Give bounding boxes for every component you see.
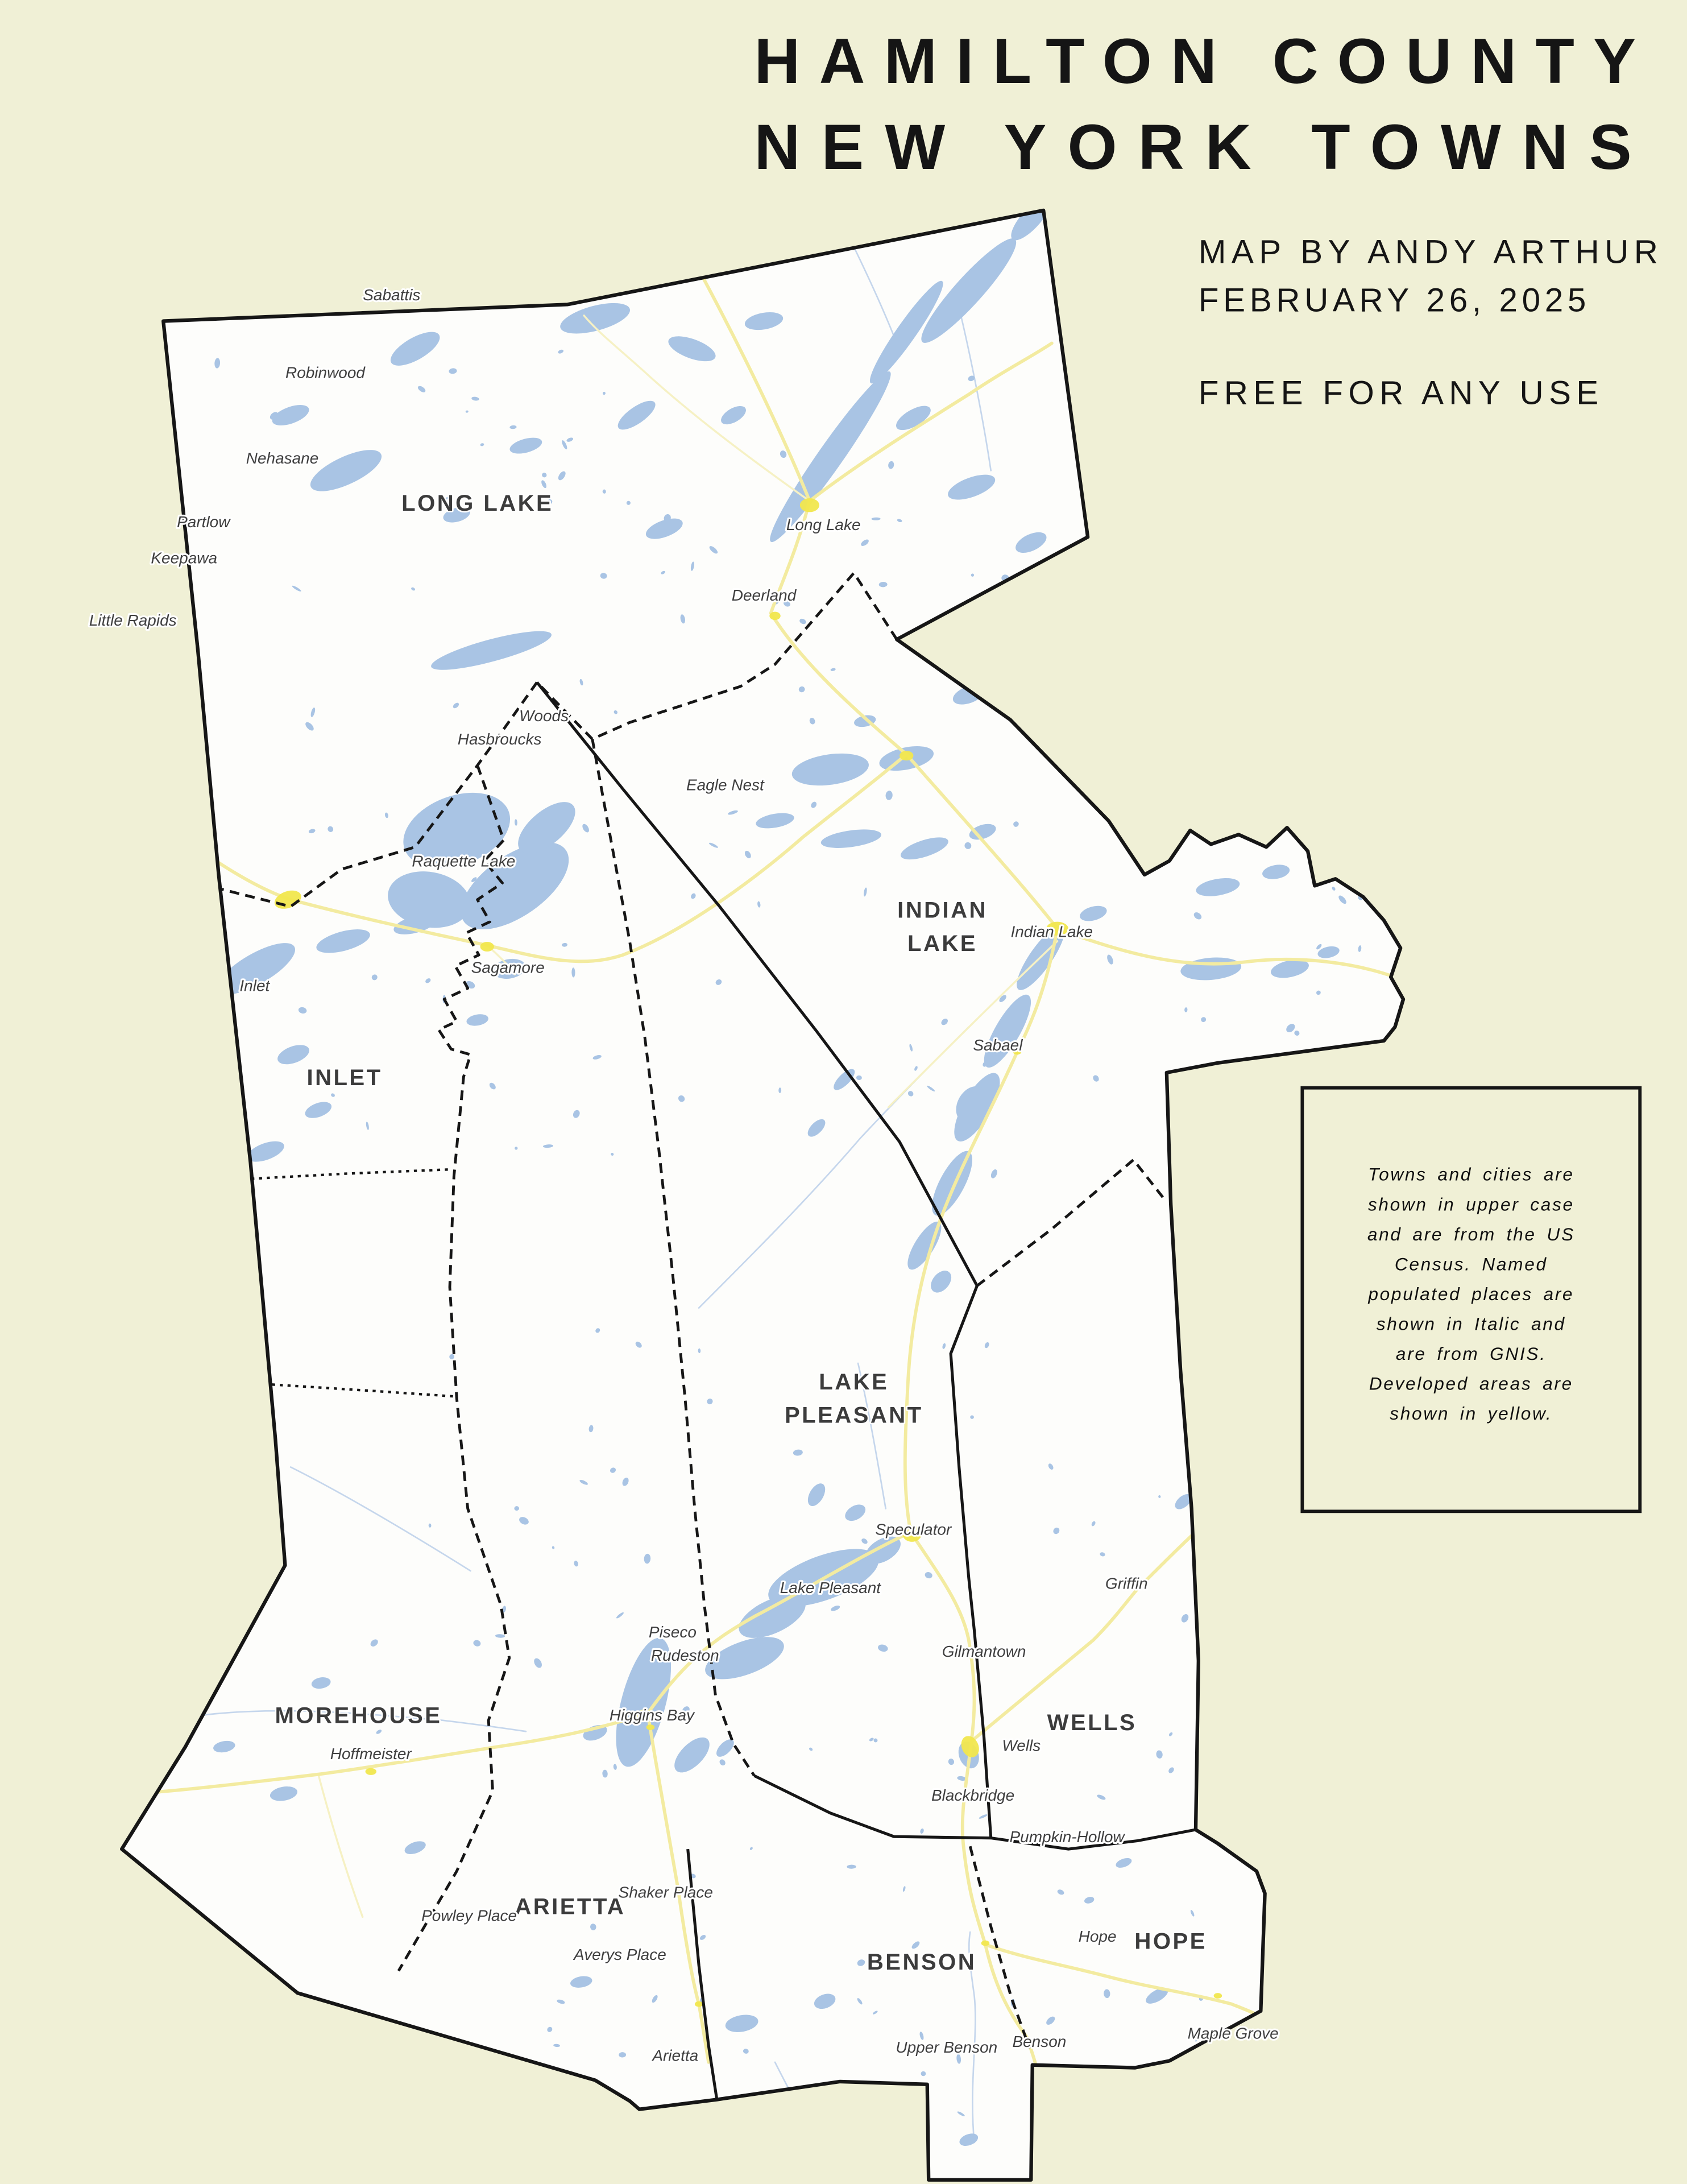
place-label-little-rapids: Little Rapids bbox=[89, 611, 177, 629]
lake-speck bbox=[859, 2110, 865, 2116]
place-label-blackbridge: Blackbridge bbox=[931, 1786, 1014, 1804]
place-label-lake-pleasant: Lake Pleasant bbox=[780, 1579, 882, 1596]
legend-note-line-3: and are from the US bbox=[1367, 1224, 1575, 1244]
place-label-piseco: Piseco bbox=[649, 1623, 697, 1641]
map-title-line2: NEW YORK TOWNS bbox=[755, 111, 1636, 183]
place-label-speculator: Speculator bbox=[876, 1521, 952, 1538]
place-label-partlow: Partlow bbox=[177, 513, 231, 531]
legend-note-text: Towns and cities areshown in upper casea… bbox=[1367, 1164, 1575, 1424]
place-label-keepawa: Keepawa bbox=[151, 549, 217, 566]
town-label-morehouse: MOREHOUSE bbox=[275, 1703, 442, 1728]
place-label-rudeston: Rudeston bbox=[651, 1647, 719, 1664]
place-label-hasbroucks: Hasbroucks bbox=[458, 730, 542, 748]
place-label-robinwood: Robinwood bbox=[285, 363, 366, 381]
legend-note-line-7: are from GNIS. bbox=[1396, 1343, 1547, 1364]
place-label-inlet: Inlet bbox=[239, 977, 270, 994]
place-label-deerland: Deerland bbox=[732, 586, 797, 604]
lake-speck bbox=[1211, 2074, 1219, 2083]
town-label-lake: LAKE bbox=[819, 1369, 889, 1395]
lake-speck bbox=[1105, 697, 1115, 706]
place-label-maple-grove: Maple Grove bbox=[1188, 2024, 1279, 2042]
lake-speck bbox=[1092, 759, 1099, 763]
place-label-indian-lake: Indian Lake bbox=[1010, 923, 1093, 940]
legend-note-line-8: Developed areas are bbox=[1369, 1374, 1573, 1394]
place-label-averys-place: Averys Place bbox=[573, 1946, 666, 1963]
place-label-upper-benson: Upper Benson bbox=[896, 2038, 997, 2056]
town-label-pleasant: PLEASANT bbox=[785, 1403, 923, 1428]
place-label-nehasane: Nehasane bbox=[246, 449, 319, 467]
place-label-long-lake: Long Lake bbox=[786, 516, 861, 533]
county-landmass bbox=[122, 210, 1403, 2180]
town-label-long-lake: LONG LAKE bbox=[401, 490, 553, 516]
place-label-wells: Wells bbox=[1002, 1736, 1041, 1754]
place-label-benson: Benson bbox=[1012, 2033, 1066, 2050]
legend-note-line-2: shown in upper case bbox=[1368, 1194, 1574, 1214]
place-label-shaker-place: Shaker Place bbox=[619, 1883, 713, 1901]
map-title-line1: HAMILTON COUNTY bbox=[755, 26, 1640, 97]
legend-note-line-9: shown in yellow. bbox=[1390, 1403, 1552, 1424]
place-label-eagle-nest: Eagle Nest bbox=[686, 776, 765, 794]
town-label-benson: BENSON bbox=[867, 1949, 976, 1975]
credit-license: FREE FOR ANY USE bbox=[1199, 375, 1601, 412]
town-label-wells: WELLS bbox=[1047, 1710, 1137, 1735]
place-label-raquette-lake: Raquette Lake bbox=[412, 852, 515, 870]
place-label-woods: Woods bbox=[519, 707, 569, 725]
town-label-hope: HOPE bbox=[1134, 1928, 1207, 1954]
place-label-hope: Hope bbox=[1079, 1927, 1117, 1945]
legend-note-line-6: shown in Italic and bbox=[1377, 1314, 1566, 1334]
lake-speck bbox=[1322, 849, 1328, 856]
place-label-arietta: Arietta bbox=[651, 2046, 698, 2064]
place-label-sabael: Sabael bbox=[973, 1036, 1023, 1054]
credit-byline: MAP BY ANDY ARTHUR bbox=[1199, 233, 1661, 270]
place-label-griffin: Griffin bbox=[1105, 1575, 1148, 1592]
place-label-pumpkin-hollow: Pumpkin-Hollow bbox=[1010, 1828, 1126, 1846]
town-label-lake: LAKE bbox=[907, 930, 977, 956]
place-label-higgins-bay: Higgins Bay bbox=[610, 1706, 695, 1724]
map-poster: LONG LAKEINDIANLAKEINLETLAKEPLEASANTMORE… bbox=[0, 0, 1687, 2184]
legend-note-line-4: Census. Named bbox=[1395, 1254, 1548, 1274]
place-label-gilmantown: Gilmantown bbox=[942, 1643, 1026, 1660]
town-label-indian: INDIAN bbox=[897, 897, 988, 923]
place-label-sabattis: Sabattis bbox=[363, 286, 420, 304]
town-label-inlet: INLET bbox=[307, 1065, 383, 1090]
place-label-sagamore: Sagamore bbox=[471, 959, 545, 977]
credit-date: FEBRUARY 26, 2025 bbox=[1199, 282, 1589, 319]
legend-note-line-5: populated places are bbox=[1367, 1284, 1574, 1304]
place-label-powley-place: Powley Place bbox=[421, 1907, 517, 1925]
town-label-arietta: ARIETTA bbox=[515, 1893, 625, 1919]
lake-speck bbox=[921, 2071, 926, 2077]
hamilton-county-map: LONG LAKEINDIANLAKEINLETLAKEPLEASANTMORE… bbox=[0, 0, 1687, 2184]
legend-note-line-1: Towns and cities are bbox=[1368, 1164, 1574, 1185]
place-label-hoffmeister: Hoffmeister bbox=[330, 1745, 413, 1763]
